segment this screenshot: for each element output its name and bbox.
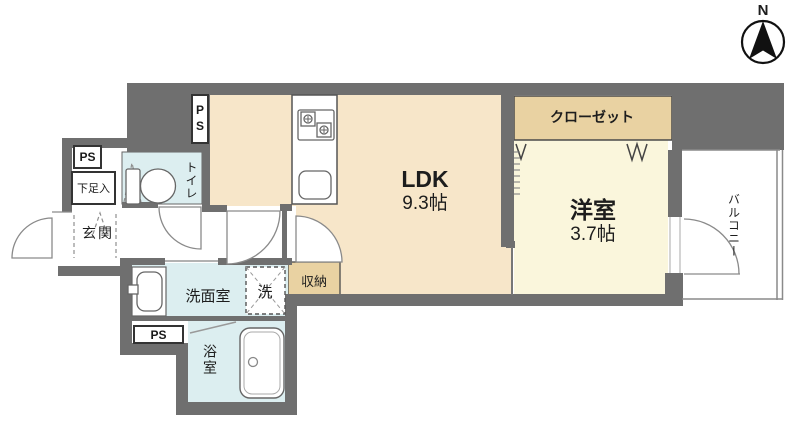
wall-bath-east — [285, 294, 297, 402]
wall-western-east-lower — [665, 273, 683, 306]
wall-western-east-upper — [668, 150, 682, 217]
north-arrow-icon — [749, 21, 777, 59]
wall-slide-cap — [506, 241, 515, 248]
toilet-bowl — [141, 169, 176, 203]
ps-shaft-bottom: PS — [133, 325, 184, 344]
wall-hall-north-b — [280, 204, 292, 211]
ps-shaft-top: PS — [191, 94, 209, 144]
wall-genkan-south — [58, 266, 125, 276]
wall-below-ps — [120, 343, 188, 355]
ldk-label: LDK 9.3帖 — [365, 166, 485, 215]
wall-washroom-bath-divider — [130, 316, 288, 321]
toilet-door-swing — [159, 207, 201, 249]
toilet-tank — [126, 169, 140, 204]
storage-label: 収納 — [289, 271, 339, 290]
wall-bath-south — [176, 402, 297, 415]
balcony-label: バルコニー — [725, 180, 743, 270]
ps-shaft-left: PS — [73, 145, 102, 169]
shoe-cabinet: 下足入 — [71, 171, 116, 205]
entrance-door-swing — [12, 218, 52, 258]
western-room-label: 洋室 3.7帖 — [533, 197, 653, 246]
ldk-door-swing — [227, 211, 280, 264]
washbasin — [137, 272, 162, 311]
wall-hall-east — [282, 211, 287, 258]
washroom-label: 洗面室 — [168, 285, 248, 306]
wall-topright-block — [672, 83, 784, 150]
closet-label: クローゼット — [513, 107, 671, 127]
wall-hall-north-a — [202, 205, 227, 212]
bathtub-inner — [244, 332, 280, 394]
washer-label: 洗 — [251, 281, 279, 302]
compass-north-label: N — [753, 2, 773, 19]
toilet-label: トイレ — [183, 155, 200, 205]
kitchen-sink — [299, 171, 331, 199]
ldk-name: LDK — [365, 166, 485, 192]
western-room-area: 3.7帖 — [533, 223, 653, 246]
bathroom-label: 浴室 — [201, 338, 219, 382]
compass — [742, 21, 784, 63]
washbasin-tap — [128, 285, 138, 294]
wall-washroom-west — [120, 262, 132, 345]
ldk-area: 9.3帖 — [365, 192, 485, 215]
wall-bottom-main — [285, 294, 675, 306]
western-room-name: 洋室 — [533, 197, 653, 223]
floorplan: N PS PS 下足入 玄関 トイレ LDK 9.3帖 クローゼット 洋室 3.… — [0, 0, 800, 424]
wall-toilet-east — [202, 152, 210, 207]
genkan-label: 玄関 — [82, 223, 114, 243]
